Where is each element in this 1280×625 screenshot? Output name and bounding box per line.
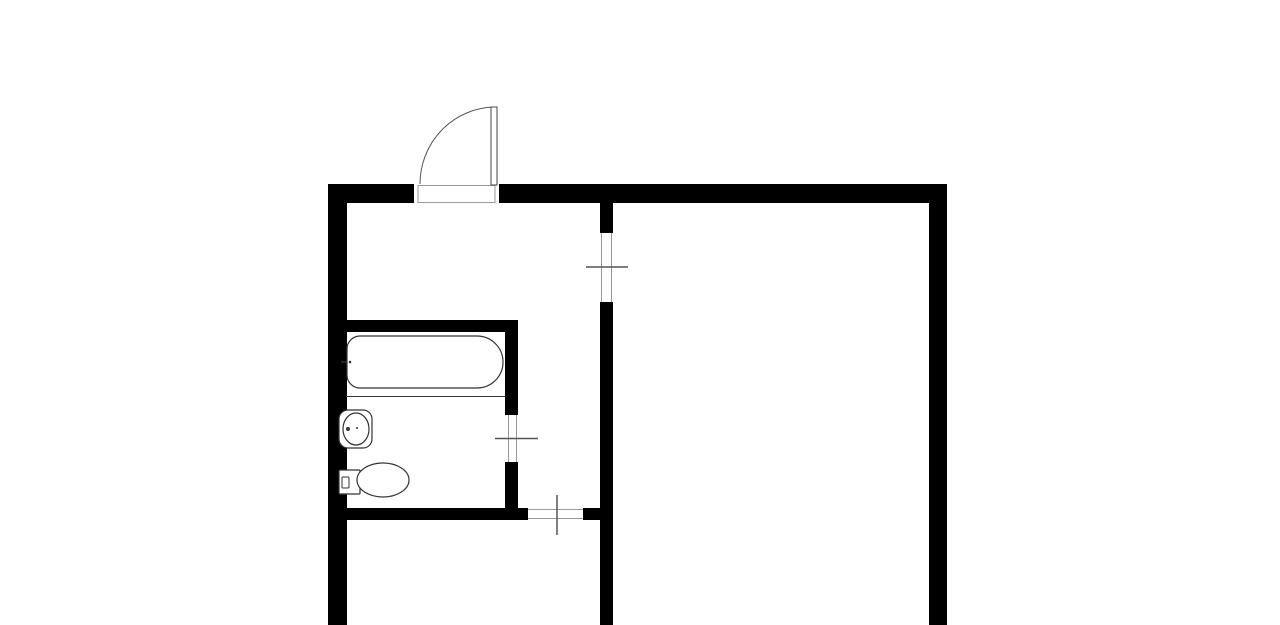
sink-drain-dot	[356, 427, 358, 429]
wall-partition-lower	[600, 302, 613, 625]
entry-door-threshold	[418, 186, 495, 203]
sink-faucet-dot	[346, 427, 350, 431]
toilet-bowl	[357, 463, 409, 497]
floor-plan-svg	[0, 0, 1280, 625]
toilet-tank-button	[342, 477, 349, 488]
wall-outer-top-right-segment	[499, 184, 947, 203]
wall-outer-right	[929, 184, 947, 625]
wall-bottom-right-segment	[583, 508, 613, 520]
wall-outer-left	[328, 184, 347, 625]
entry-door-leaf	[491, 107, 497, 185]
floor-plan	[0, 0, 1280, 625]
wall-bathroom-top	[346, 320, 518, 332]
plan-background	[0, 0, 1280, 625]
wall-bottom-left-segment	[346, 508, 528, 520]
wall-outer-top-left-segment	[328, 184, 414, 203]
wall-partition-upper	[600, 203, 613, 233]
bathtub-faucet-dot	[349, 361, 352, 364]
bathtub	[347, 336, 503, 388]
wall-bathroom-side-upper	[505, 320, 518, 415]
